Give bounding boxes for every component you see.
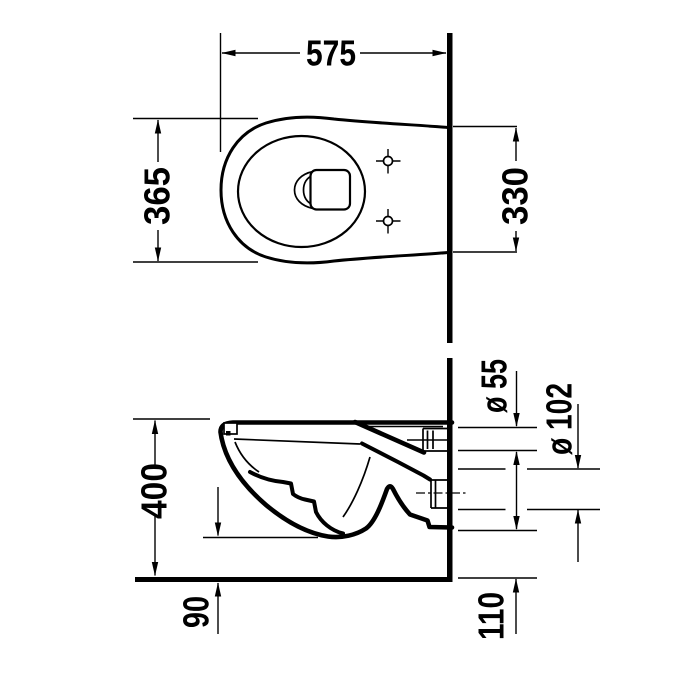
dim-label-supply-diameter: ø 55 [474, 359, 515, 413]
dim-overall-depth: 575 [221, 33, 447, 153]
dim-label-overall-depth: 575 [306, 33, 356, 74]
side-view: ø 55 ø 102 400 90 [133, 358, 600, 640]
dim-label-outlet-height: 110 [471, 592, 512, 640]
technical-drawing: 575 365 330 [0, 0, 700, 700]
technical-drawing-page: 575 365 330 [0, 0, 700, 700]
dim-label-bowl-width: 365 [137, 167, 178, 225]
bowl-inner-front-line [235, 442, 259, 472]
dim-outlet-diameter: ø 102 [539, 383, 582, 562]
rim-underside-line [234, 439, 360, 444]
fixing-hole-bottom [376, 209, 401, 234]
wall-line-top [447, 33, 453, 343]
dim-underside-clearance: 90 [176, 487, 319, 634]
flush-opening [311, 170, 351, 210]
floor-line [135, 577, 453, 582]
drain-socket [416, 480, 468, 508]
dim-label-rear-width: 330 [495, 167, 536, 225]
fixing-hole-top [376, 149, 401, 174]
dim-label-height: 400 [134, 463, 175, 519]
dim-rear-width: 330 [453, 127, 536, 253]
dim-label-underside-clearance: 90 [176, 596, 217, 628]
dim-outlet-height: 110 [471, 579, 520, 641]
bowl-inner-back-line [343, 457, 370, 517]
rim-front-notch [226, 431, 231, 436]
wall-line-side [447, 358, 453, 582]
dim-label-outlet-diameter: ø 102 [539, 383, 580, 455]
dim-height: 400 [133, 419, 210, 576]
dim-supply-diameter: ø 55 [474, 359, 520, 530]
top-view: 575 365 330 [133, 33, 536, 344]
